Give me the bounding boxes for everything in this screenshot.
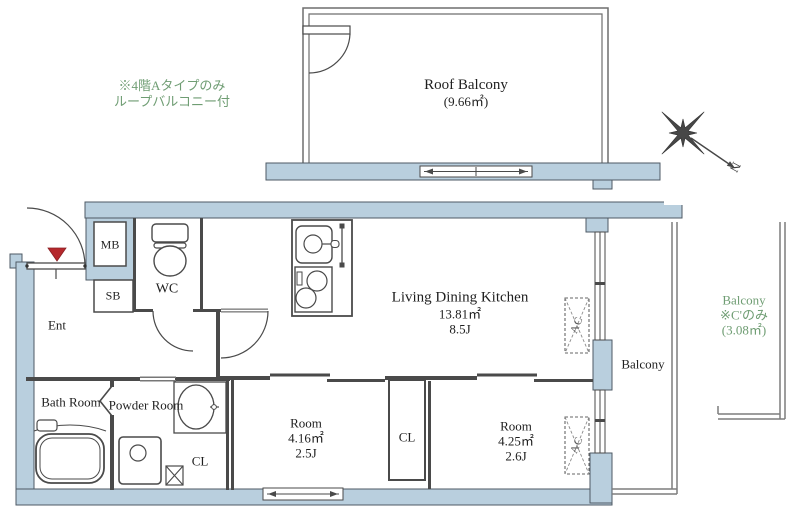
room-a-label: Room 4.16㎡ 2.5J <box>288 416 324 461</box>
room-b-balcony-window <box>595 390 605 453</box>
balcony-label: Balcony <box>621 357 664 372</box>
roof-balcony-label: Roof Balcony (9.66㎡) <box>424 77 508 109</box>
kitchen-icon <box>292 220 352 316</box>
room-a-size: 2.5J <box>288 446 324 461</box>
shoe-box-label: SB <box>106 289 121 304</box>
room-b-size: 2.6J <box>498 449 534 464</box>
roof-balcony-door <box>303 26 350 73</box>
roof-balcony-area: (9.66㎡) <box>424 94 508 109</box>
washing-machine-icon <box>119 437 161 484</box>
room-a-window <box>263 488 343 500</box>
c-balcony-line1: Balcony <box>720 293 768 308</box>
floor-plan: ※4階Aタイプのみ ループバルコニー付 Roof Balcony (9.66㎡)… <box>0 0 800 524</box>
wc-door-arc <box>153 311 193 351</box>
closet-hall-label: CL <box>192 454 209 469</box>
ldk-size: 8.5J <box>392 322 529 337</box>
room-a-name: Room <box>288 416 324 431</box>
entrance-label: Ent <box>48 318 66 333</box>
bathroom-label: Bath Room <box>41 395 101 410</box>
roof-note-line1: ※4階Aタイプのみ <box>114 78 230 94</box>
c-balcony-line2: ※C'のみ <box>720 308 768 323</box>
c-balcony-line3: (3.08㎡) <box>720 323 768 338</box>
room-b-name: Room <box>498 419 534 434</box>
compass-icon <box>662 112 735 168</box>
ldk-name: Living Dining Kitchen <box>392 290 529 307</box>
ldk-balcony-window <box>595 232 605 340</box>
entrance-marker <box>48 248 66 261</box>
room-a-area: 4.16㎡ <box>288 431 324 446</box>
bathtub-icon <box>34 420 106 483</box>
ldk-door <box>221 309 268 359</box>
shaft-box-icon <box>166 466 183 485</box>
powder-room-label: Powder Room <box>108 398 184 413</box>
room-b-label: Room 4.25㎡ 2.6J <box>498 419 534 464</box>
toilet-icon <box>152 224 188 276</box>
roof-balcony-name: Roof Balcony <box>424 77 508 94</box>
roof-note-line2: ループバルコニー付 <box>114 94 230 110</box>
c-balcony-note: Balcony ※C'のみ (3.08㎡) <box>720 293 768 338</box>
closet-rooms-label: CL <box>399 430 416 445</box>
meter-box-label: MB <box>101 238 120 253</box>
wc-label: WC <box>156 282 179 297</box>
ldk-area: 13.81㎡ <box>392 307 529 322</box>
room-b-area: 4.25㎡ <box>498 434 534 449</box>
roof-balcony-window <box>420 166 532 177</box>
entrance-door <box>25 208 86 279</box>
roof-balcony-note: ※4階Aタイプのみ ループバルコニー付 <box>114 78 230 110</box>
ldk-label: Living Dining Kitchen 13.81㎡ 8.5J <box>392 290 529 337</box>
